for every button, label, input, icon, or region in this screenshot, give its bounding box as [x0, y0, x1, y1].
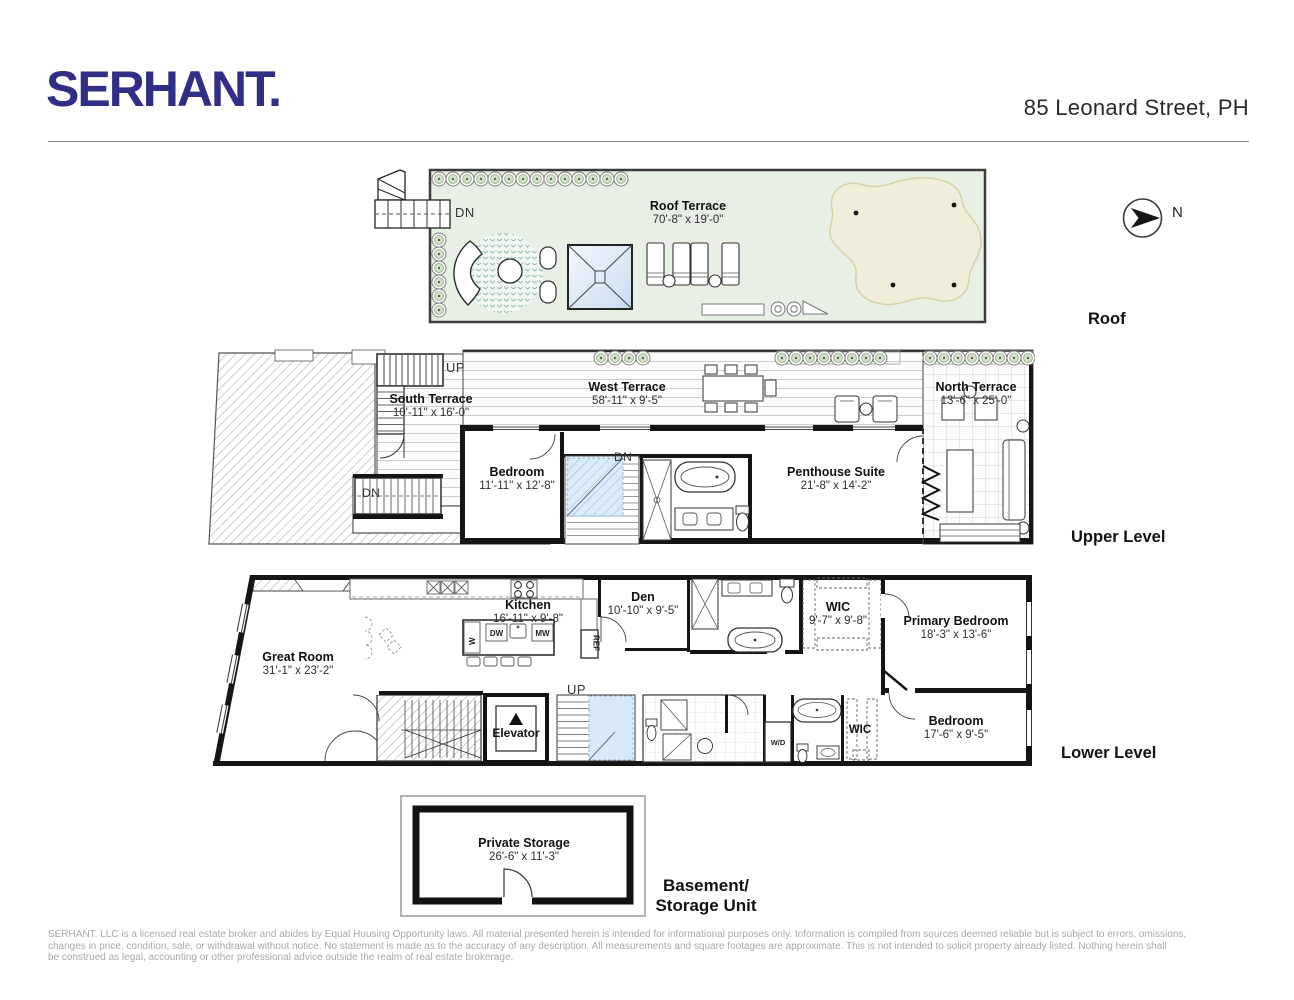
bench: [940, 524, 1020, 542]
elevator-label: Elevator: [492, 726, 539, 740]
lower-up-label: UP: [567, 682, 586, 697]
lounge-chairs: [647, 243, 739, 287]
wine-cooler-label: W: [468, 637, 477, 645]
room-label-great-room: Great Room 31'-1" x 23'-2": [262, 650, 334, 678]
sink: [817, 746, 839, 759]
room-name: Bedroom: [924, 714, 988, 729]
disclaimer-line: be construed as legal, accounting or oth…: [48, 952, 1254, 964]
room-dims: 18'-3" x 13'-6": [904, 629, 1009, 643]
basement-label-line1: Basement/: [655, 876, 756, 896]
toilet: [780, 579, 794, 587]
room-label-den: Den 10'-10" x 9'-5": [608, 590, 679, 618]
room-name: West Terrace: [588, 380, 665, 395]
property-address: 85 Leonard Street, PH: [1024, 95, 1249, 121]
room-dims: 10'-11" x 16'-0": [388, 407, 474, 421]
washer-dryer-label: W/D: [771, 738, 786, 747]
legal-disclaimer: SERHANT. LLC is a licensed real estate b…: [48, 929, 1254, 964]
room-dims: 58'-11" x 9'-5": [588, 395, 665, 409]
room-label-roof-terrace: Roof Terrace 70'-8" x 19'-0": [650, 199, 726, 227]
room-name: North Terrace: [935, 380, 1016, 395]
room-label-upper-bedroom: Bedroom 11'-11" x 12'-8": [479, 465, 554, 493]
coffee-table: [947, 450, 973, 512]
door-gap: [502, 894, 532, 908]
room-label-private-storage: Private Storage 26'-6" x 11'-3": [478, 836, 570, 864]
right-windows: [1025, 602, 1033, 746]
room-dims: 9'-7" x 9'-8": [809, 615, 867, 629]
upper-dn-stairs: [565, 456, 639, 544]
room-label-lower-bedroom: Bedroom 17'-6" x 9'-5": [924, 714, 988, 742]
upper-up-label: UP: [446, 360, 465, 375]
round-table: [498, 259, 522, 283]
floorplan-page: SERHANT. 85 Leonard Street, PH: [0, 0, 1294, 1000]
dishwasher-label: DW: [490, 629, 504, 638]
room-name: Roof Terrace: [650, 199, 726, 214]
room-name: Penthouse Suite: [787, 465, 885, 480]
room-dims: 13'-6" x 25'-0": [935, 395, 1016, 409]
ref-label: REF: [592, 635, 601, 651]
room-name: WIC: [809, 600, 867, 615]
room-label-south-terrace: South Terrace 10'-11" x 16'-0": [388, 392, 474, 420]
plant: [1017, 420, 1029, 432]
skylight: [568, 245, 632, 309]
double-vanity: [722, 580, 772, 596]
sofa: [1003, 440, 1025, 520]
double-vanity: [675, 508, 733, 530]
room-name: South Terrace: [388, 392, 474, 407]
room-label-wic: WIC 9'-7" x 9'-8": [809, 600, 867, 628]
compass-n-label: N: [1172, 204, 1183, 221]
room-label-penthouse-suite: Penthouse Suite 21'-8" x 14'-2": [787, 465, 885, 493]
disclaimer-line: SERHANT. LLC is a licensed real estate b…: [48, 929, 1254, 941]
room-label-north-terrace: North Terrace 13'-6" x 25'-0": [935, 380, 1016, 408]
upper-dn-entry-label: DN: [362, 486, 380, 500]
upper-dn-label: DN: [614, 450, 632, 464]
room-name: Den: [608, 590, 679, 605]
room-name: Great Room: [262, 650, 334, 665]
room-name: Private Storage: [478, 836, 570, 851]
room-name: Primary Bedroom: [904, 614, 1009, 629]
wic-small-label: WIC: [849, 724, 871, 738]
room-dims: 11'-11" x 12'-8": [479, 480, 554, 494]
level-label-roof: Roof: [1088, 310, 1126, 329]
room-dims: 70'-8" x 19'-0": [650, 214, 726, 228]
header-divider: [48, 141, 1249, 142]
north-arrow-icon: [1118, 196, 1178, 240]
lower-up-stairs: [557, 695, 635, 761]
room-dims: 17'-6" x 9'-5": [924, 729, 988, 743]
second-bath: [643, 695, 765, 762]
room-name: Bedroom: [479, 465, 554, 480]
disclaimer-line: changes in price, condition, sale, or wi…: [48, 941, 1254, 953]
level-label-basement: Basement/ Storage Unit: [655, 876, 756, 915]
room-dims: 10'-10" x 9'-5": [608, 605, 679, 619]
open-to-above: [589, 696, 633, 760]
room-dims: 26'-6" x 11'-3": [478, 851, 570, 865]
basement-label-line2: Storage Unit: [655, 896, 756, 916]
room-name: Kitchen: [493, 598, 563, 613]
room-dims: 21'-8" x 14'-2": [787, 480, 885, 494]
level-label-lower: Lower Level: [1061, 744, 1156, 763]
room-label-west-terrace: West Terrace 58'-11" x 9'-5": [588, 380, 665, 408]
serhant-logo: SERHANT.: [46, 60, 280, 118]
room-label-primary-bedroom: Primary Bedroom 18'-3" x 13'-6": [904, 614, 1009, 642]
room-dims: 31'-1" x 23'-2": [262, 665, 334, 679]
bathtub: [675, 462, 735, 492]
level-label-upper: Upper Level: [1071, 528, 1165, 547]
room-label-kitchen: Kitchen 16'-11" x 9'-8": [493, 598, 563, 626]
roof-notch: [275, 350, 313, 361]
roof-plan: [370, 165, 990, 330]
microwave-label: MW: [535, 629, 550, 638]
roof-dn-label: DN: [455, 205, 475, 220]
room-dims: 16'-11" x 9'-8": [493, 613, 563, 627]
